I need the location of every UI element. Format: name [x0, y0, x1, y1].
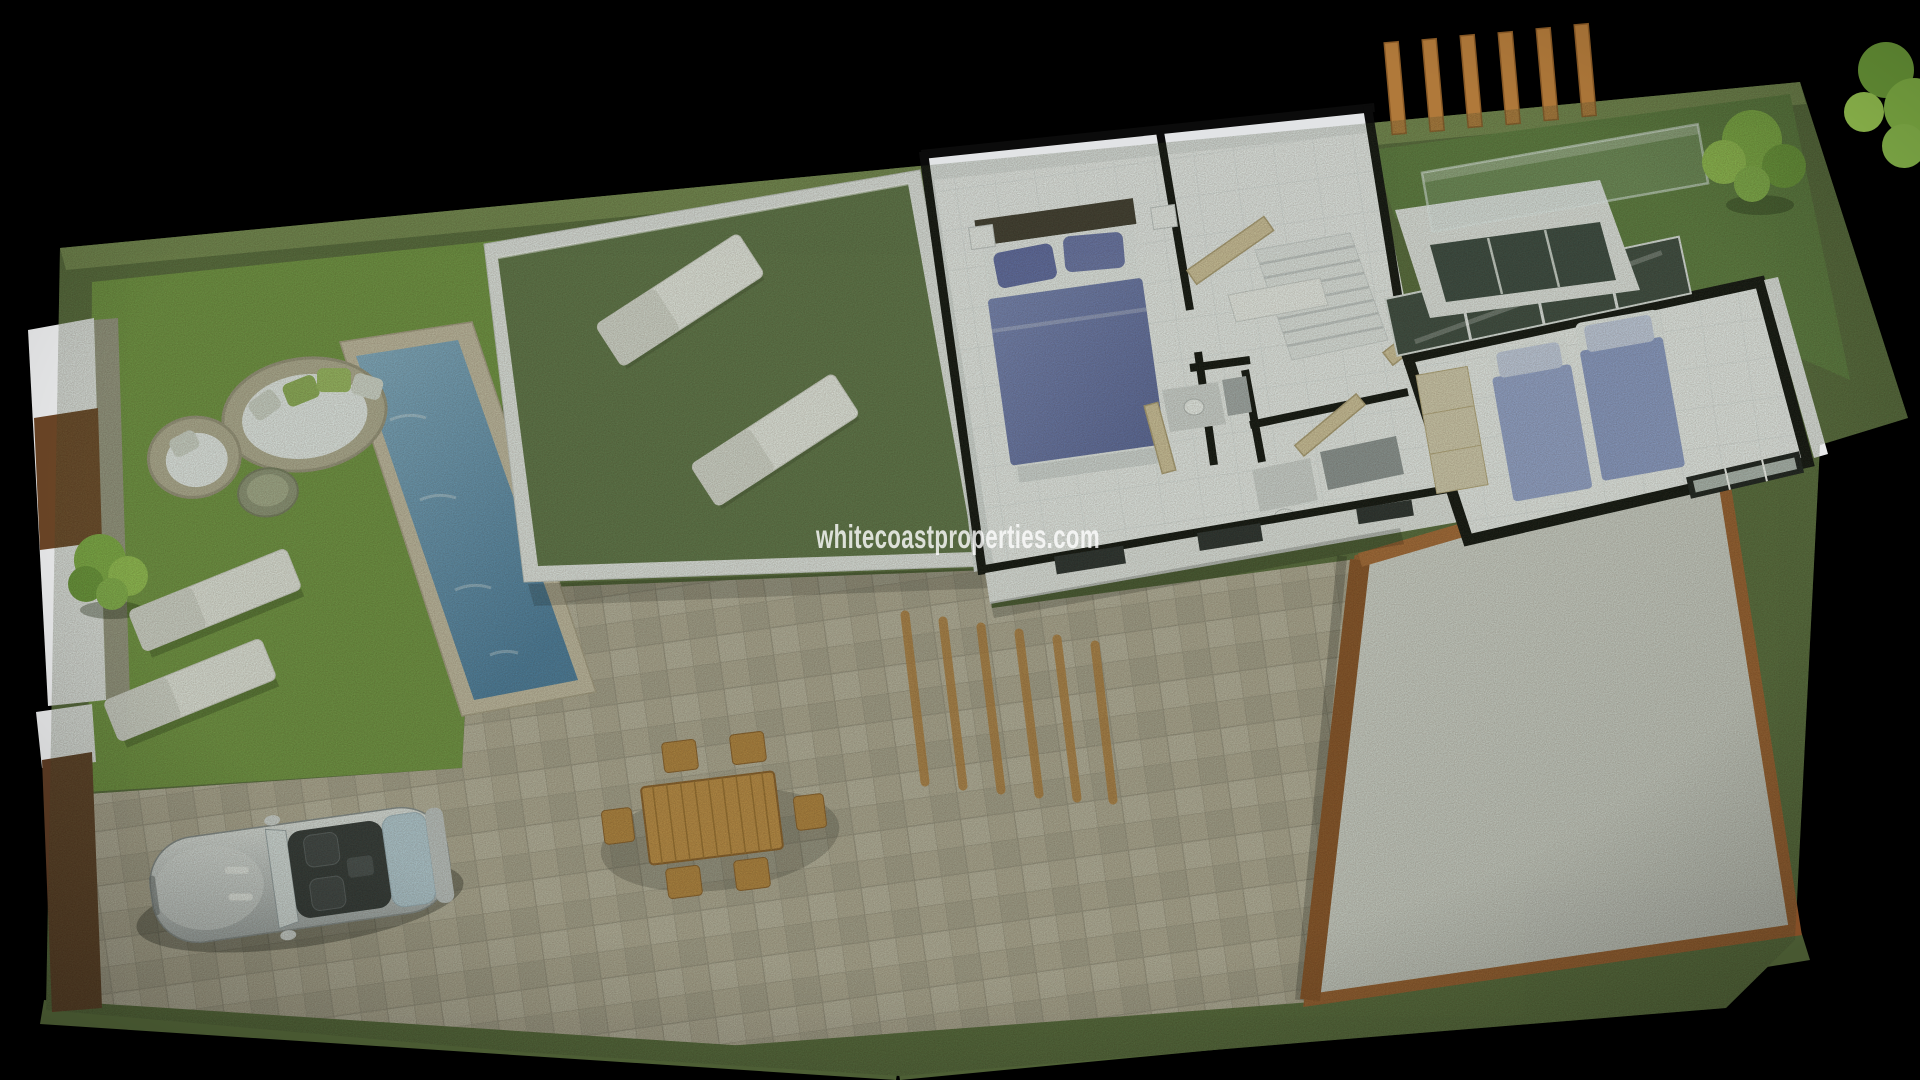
villa-render: whitecoastproperties.com [0, 0, 1920, 1080]
watermark-text: whitecoastproperties.com [815, 518, 1100, 555]
render-canvas: whitecoastproperties.com [0, 0, 1920, 1080]
